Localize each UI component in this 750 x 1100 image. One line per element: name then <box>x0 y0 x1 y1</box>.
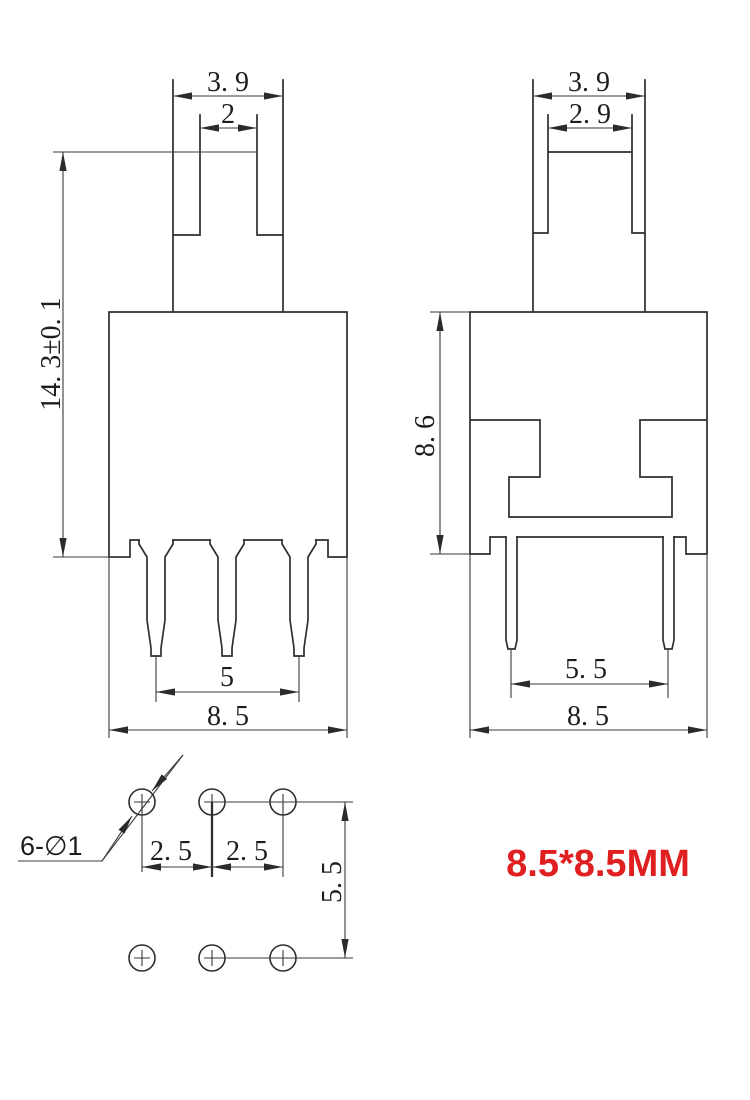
front-dim-cap-width: 3. 9 <box>207 67 249 98</box>
side-dim-cap-width: 3. 9 <box>568 67 610 98</box>
front-dim-stem-width: 2 <box>221 99 235 130</box>
hole-leader-arrow-upper <box>152 755 183 791</box>
side-pins <box>506 537 674 649</box>
front-dim-total-height: 14. 3±0. 1 <box>36 297 67 410</box>
side-body-outline <box>470 312 707 554</box>
hole-leader-arrow-lower <box>102 816 132 861</box>
size-callout: 8.5*8.5MM <box>506 843 690 885</box>
technical-drawing-page: 3. 9 2 14. 3±0. 1 5 8. 5 3. 9 2. 9 8. 6 … <box>0 0 750 1100</box>
front-body-outline <box>109 312 347 557</box>
bottom-dim-row-span: 5. 5 <box>317 861 348 903</box>
hole-callout-label: 6-∅1 <box>20 831 83 861</box>
front-view: 3. 9 2 14. 3±0. 1 5 8. 5 <box>36 67 347 738</box>
side-view: 3. 9 2. 9 8. 6 5. 5 8. 5 <box>410 67 707 738</box>
side-dim-stem-width: 2. 9 <box>569 99 611 130</box>
front-dim-body-width: 8. 5 <box>207 701 249 732</box>
bottom-dim-pitch-right: 2. 5 <box>226 836 268 867</box>
side-dim-body-width: 8. 5 <box>567 701 609 732</box>
front-extension-lines <box>53 152 347 738</box>
side-dim-body-height: 8. 6 <box>410 415 441 457</box>
side-dim-pin-span: 5. 5 <box>565 654 607 685</box>
front-pins <box>139 540 316 656</box>
front-dim-pin-span: 5 <box>220 662 234 693</box>
bottom-view: 2. 5 2. 5 5. 5 6-∅1 <box>18 755 353 971</box>
bottom-dim-pitch-left: 2. 5 <box>150 836 192 867</box>
switch-dimension-drawing: 3. 9 2 14. 3±0. 1 5 8. 5 3. 9 2. 9 8. 6 … <box>0 0 750 1100</box>
